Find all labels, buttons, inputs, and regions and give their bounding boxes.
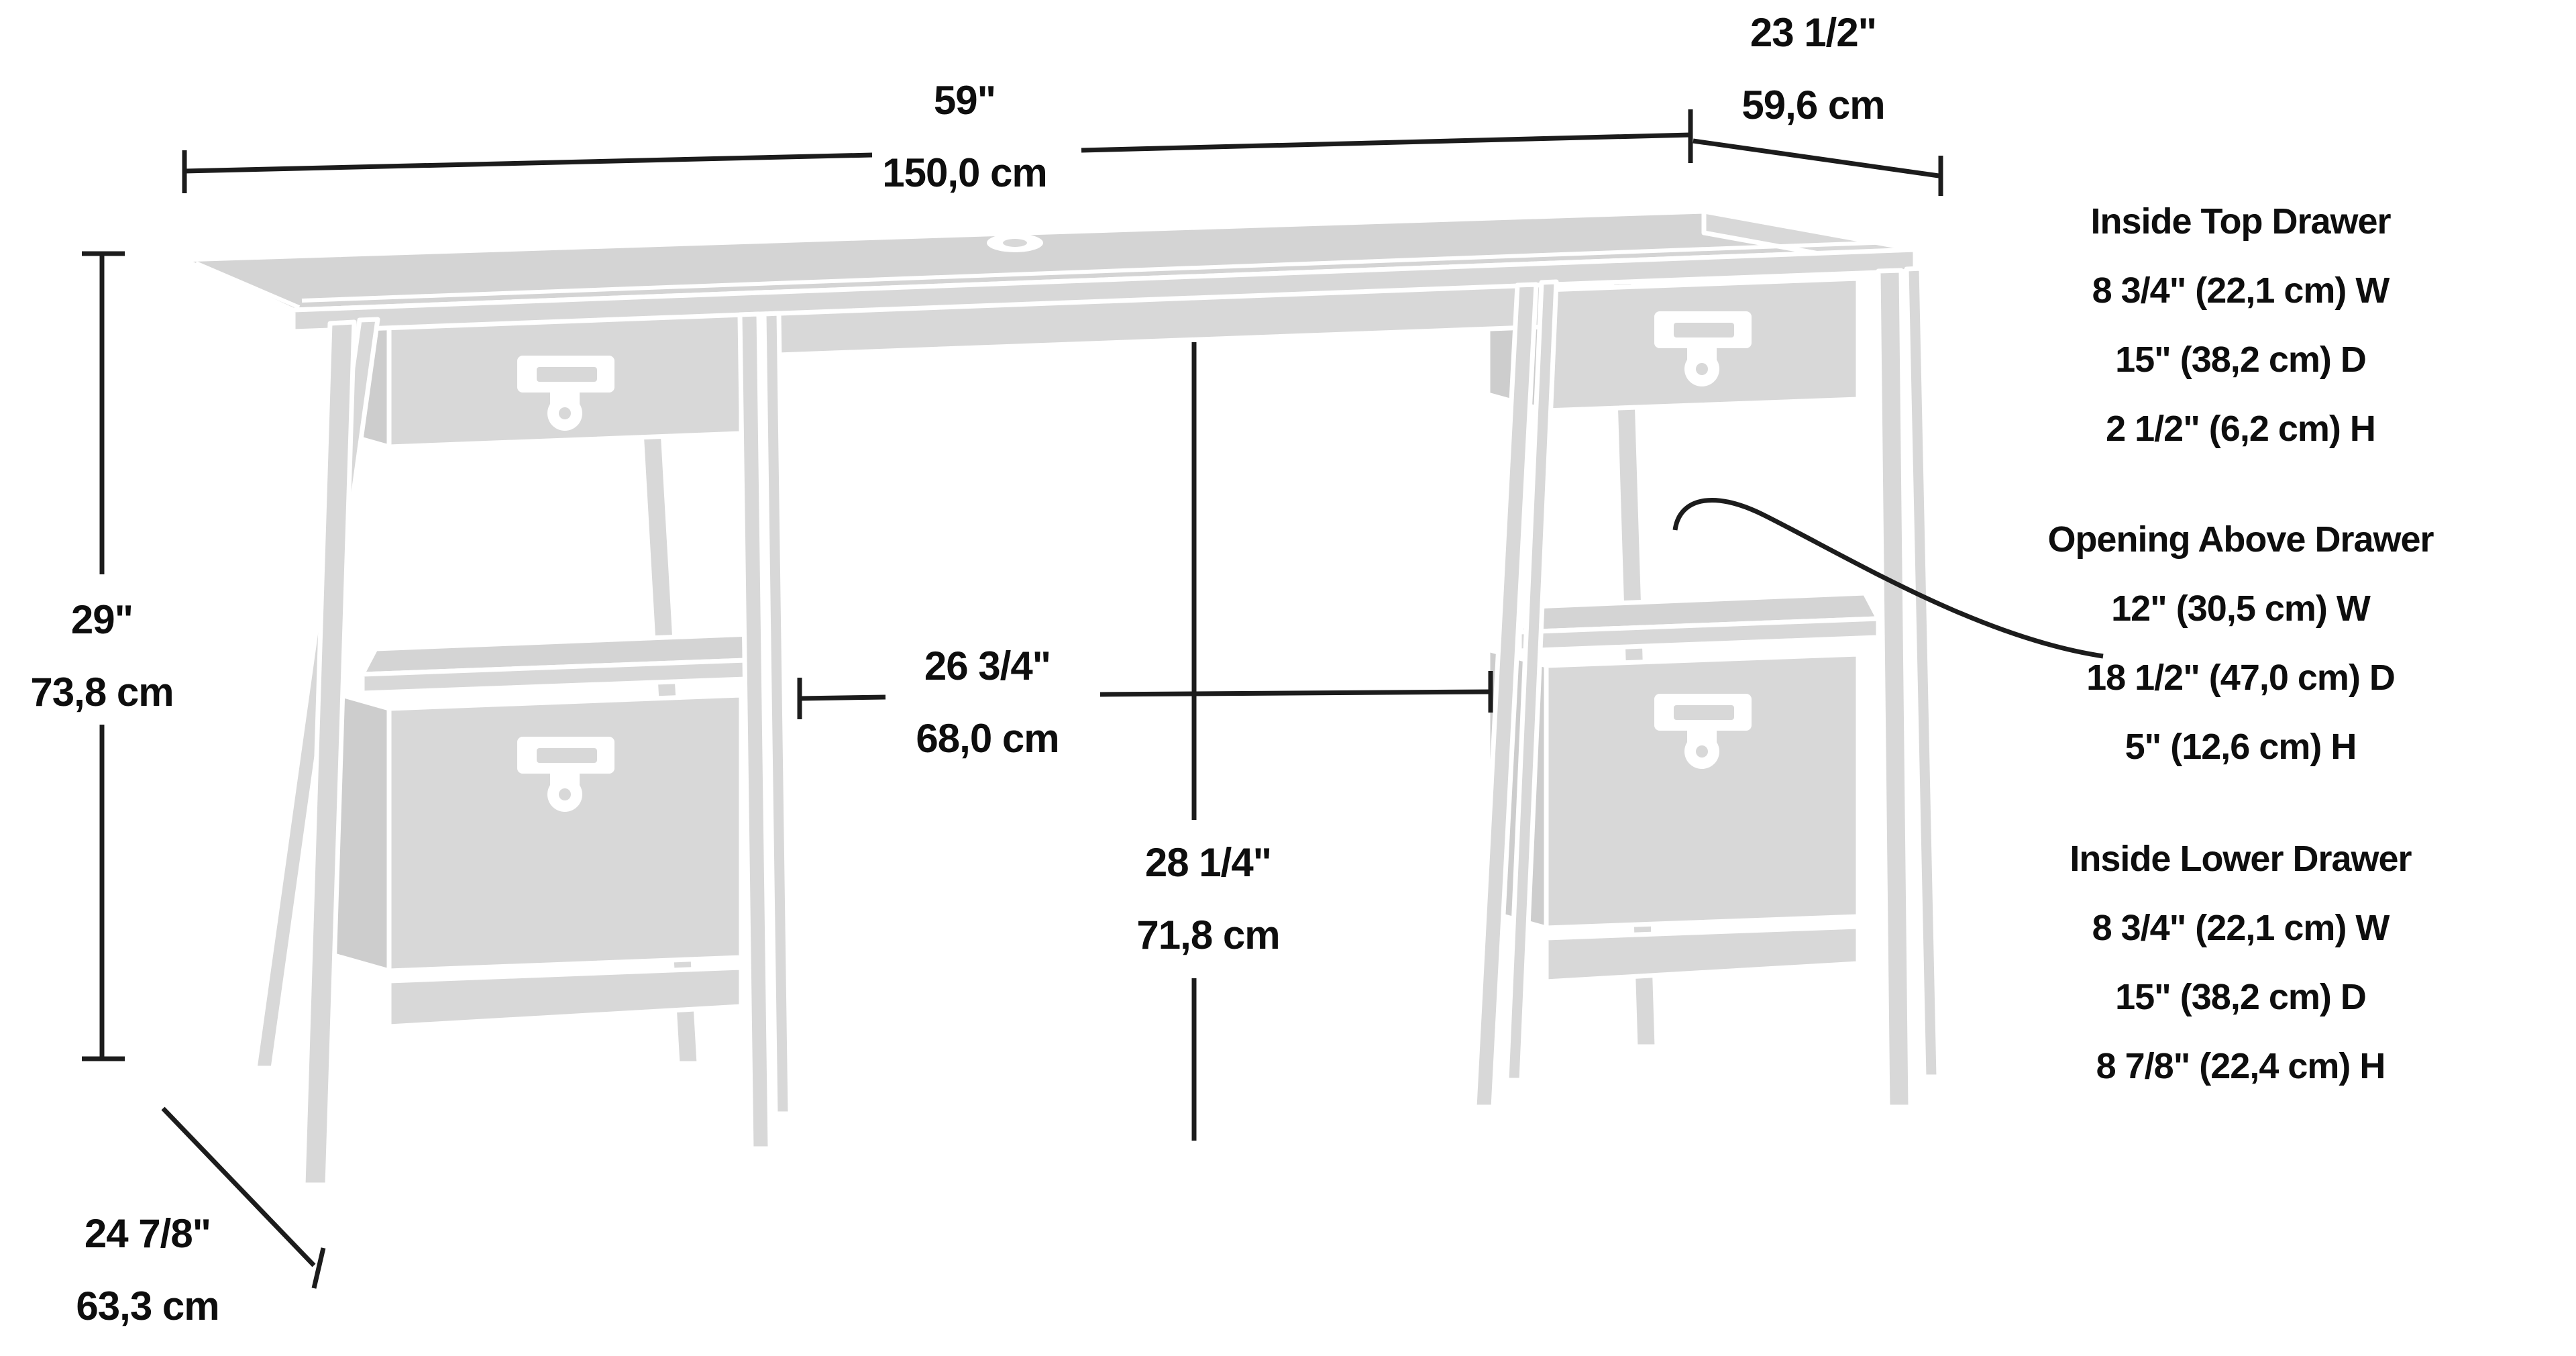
annotation-line: 8 7/8" (22,4 cm) H — [2070, 1032, 2411, 1101]
diagram-canvas: 59" 150,0 cm 23 1/2" 59,6 cm 29" 73,8 cm… — [0, 0, 2576, 1356]
dimension-label-depth: 23 1/2" 59,6 cm — [1741, 0, 1884, 142]
dimension-label-height: 29" 73,8 cm — [30, 584, 173, 729]
annotation-line: 8 3/4" (22,1 cm) W — [2090, 256, 2390, 325]
dimension-label-width: 59" 150,0 cm — [882, 64, 1047, 209]
annotation-title: Opening Above Drawer — [2047, 505, 2433, 574]
floor-depth-inches: 24 7/8" — [76, 1198, 219, 1270]
annotation-line: 15" (38,2 cm) D — [2090, 325, 2390, 395]
depth-inches: 23 1/2" — [1741, 0, 1884, 69]
width-inches: 59" — [882, 64, 1047, 137]
height-inches: 29" — [30, 584, 173, 656]
annotation-line: 5" (12,6 cm) H — [2047, 713, 2433, 782]
annotation-inside-top-drawer: Inside Top Drawer 8 3/4" (22,1 cm) W 15"… — [2090, 187, 2390, 464]
depth-dimension-line — [1693, 141, 1941, 196]
annotation-title: Inside Top Drawer — [2090, 187, 2390, 256]
knee-space-height-inches: 28 1/4" — [1136, 827, 1279, 899]
knee-space-width-dimension-line — [800, 671, 1491, 719]
knee-space-height-cm: 71,8 cm — [1136, 899, 1279, 972]
annotation-line: 18 1/2" (47,0 cm) D — [2047, 643, 2433, 713]
cable-grommet-icon — [987, 233, 1043, 252]
depth-cm: 59,6 cm — [1741, 69, 1884, 142]
dimension-label-knee-space-height: 28 1/4" 71,8 cm — [1136, 827, 1279, 972]
annotation-line: 8 3/4" (22,1 cm) W — [2070, 894, 2411, 963]
dimension-label-knee-space-width: 26 3/4" 68,0 cm — [916, 630, 1059, 775]
annotation-line: 12" (30,5 cm) W — [2047, 574, 2433, 643]
annotation-line: 15" (38,2 cm) D — [2070, 963, 2411, 1032]
width-cm: 150,0 cm — [882, 137, 1047, 209]
annotation-title: Inside Lower Drawer — [2070, 825, 2411, 894]
dimension-label-floor-depth: 24 7/8" 63,3 cm — [76, 1198, 219, 1343]
left-pedestal — [332, 310, 765, 1027]
floor-depth-cm: 63,3 cm — [76, 1270, 219, 1343]
height-cm: 73,8 cm — [30, 656, 173, 729]
annotation-opening-above-drawer: Opening Above Drawer 12" (30,5 cm) W 18 … — [2047, 505, 2433, 782]
knee-space-width-cm: 68,0 cm — [916, 702, 1059, 775]
knee-space-width-inches: 26 3/4" — [916, 630, 1059, 702]
annotation-inside-lower-drawer: Inside Lower Drawer 8 3/4" (22,1 cm) W 1… — [2070, 825, 2411, 1101]
annotation-line: 2 1/2" (6,2 cm) H — [2090, 395, 2390, 464]
